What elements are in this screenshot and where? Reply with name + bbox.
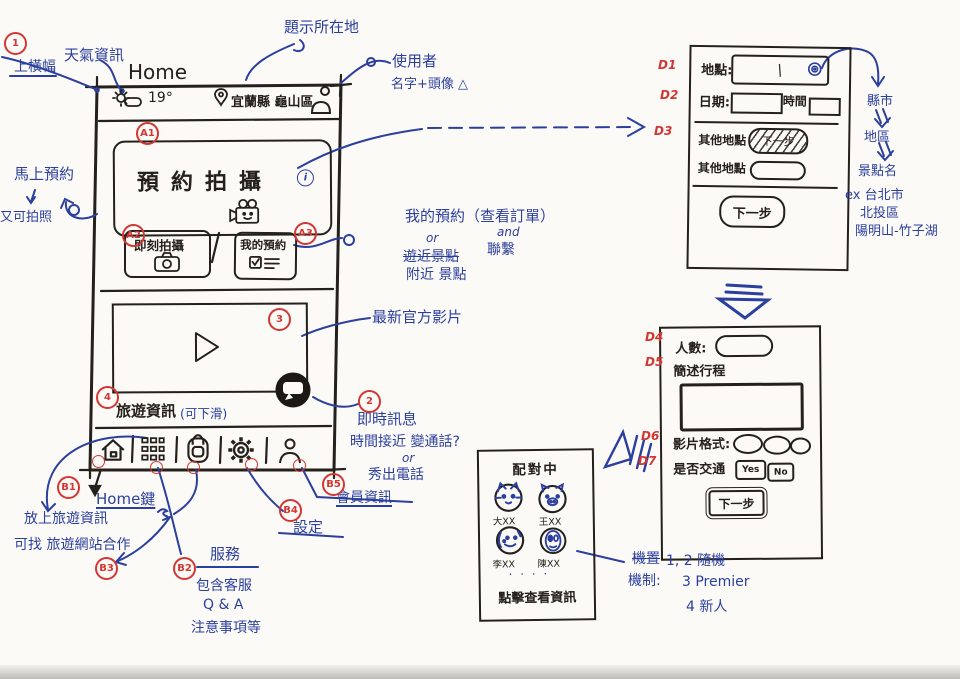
yes-label: Yes [742, 465, 759, 475]
note-mechanism-crossed: 機置 [632, 548, 660, 568]
next-step-label-1: 下一步 [733, 202, 772, 222]
marker-b5: B5 [322, 473, 345, 496]
note-nearby-spots: 附近 景點 [406, 264, 466, 284]
matching-title: 配對中 [479, 457, 592, 479]
marker-2: 2 [358, 390, 381, 413]
note-home-key: Home鍵 [96, 488, 155, 509]
note-example1: ex 台北市 [845, 184, 904, 203]
current-location-icon [807, 62, 822, 81]
sketch-page: 1 A1 A2 A3 3 4 2 B1 B3 B2 B4 B5 D1 D2 D3… [0, 0, 960, 679]
note-show-location: 題示所在地 [284, 16, 359, 37]
marker-4: 4 [96, 386, 119, 409]
info-icon: i [297, 169, 314, 186]
time-input [809, 98, 841, 116]
format-label: 影片格式: [673, 433, 730, 452]
note-put-travel-info: 放上旅遊資訊 [24, 508, 108, 528]
marker-b4: B4 [279, 499, 302, 522]
photo-camera-icon [153, 251, 181, 277]
other-location-input [750, 161, 806, 181]
nav-mark-backpack [187, 461, 200, 474]
note-time-near: 時間接近 變通話? [350, 431, 460, 451]
divider [693, 185, 838, 189]
note-service-line1: 包含客服 [196, 575, 252, 595]
marker-d1: D1 [658, 58, 676, 72]
play-icon [194, 331, 220, 367]
other-location-label-1: 其他地點 [698, 131, 746, 149]
note-near-spots-strike: 遊近景點 [403, 246, 459, 266]
more-members-dots: · · · · [508, 567, 549, 582]
note-weather: 天氣資訊 [64, 44, 124, 65]
note-service-line2: Q & A [203, 597, 243, 613]
next-step-button-2: 下一步 [708, 490, 764, 516]
people-label: 人數: [675, 337, 706, 356]
note-book-now: 馬上預約 [14, 163, 74, 184]
member-name: 大XX [493, 513, 516, 527]
note-find-partner: 可找 旅遊網站合作 [14, 534, 130, 554]
note-mechanism-label: 機制: [628, 570, 661, 590]
travel-info-title: 旅遊資訊 [116, 400, 176, 421]
phone-home-label: Home [128, 60, 187, 84]
marker-a2: A2 [122, 224, 145, 247]
date-label: 日期: [699, 91, 730, 110]
location-text: 宜蘭縣 龜山區 [231, 91, 314, 110]
next-step-button-1: 下一步 [719, 195, 785, 228]
avatar-cat-icon [491, 479, 526, 517]
my-bookings-label: 我的預約 [240, 237, 286, 253]
ink-dot [94, 87, 100, 93]
itinerary-label: 簡述行程 [673, 360, 725, 379]
location-input-value: / [775, 61, 786, 80]
matching-footer: 點擊查看資訊 [481, 586, 594, 607]
time-label: 時間 [783, 92, 807, 109]
nav-mark-gear [245, 458, 258, 471]
nav-mark-grid [150, 461, 163, 474]
transport-label: 是否交通 [673, 458, 725, 477]
note-also-shoot: 又可拍照 [0, 206, 52, 225]
marker-d2: D2 [660, 88, 678, 102]
note-and: and [497, 225, 520, 239]
note-or2: or [402, 451, 414, 465]
note-example2: 北投區 [860, 202, 899, 221]
nav-mark-home [92, 455, 105, 468]
marker-1: 1 [4, 32, 27, 55]
format-option-1 [733, 434, 763, 454]
note-district: 地區 [864, 126, 890, 145]
format-option-2 [763, 436, 791, 455]
crossed-next-label: 下一步 [762, 133, 795, 149]
location-label: 地點: [701, 59, 732, 78]
note-contact: 聯繫 [487, 239, 515, 259]
note-example3: 陽明山-竹子湖 [855, 220, 938, 239]
my-bookings-button: 我的預約 [234, 232, 297, 281]
note-mechanism-rule1: 1, 2 隨機 [666, 550, 725, 570]
member-name: 王XX [539, 514, 562, 528]
booking-step1-panel: 地點: / 日期: 時間 其他地點 下一步 其他地點 下一步 [686, 45, 851, 271]
note-top-banner: 上橫幅 [14, 56, 56, 76]
note-my-booking: 我的預約（查看訂單） [405, 205, 555, 226]
next-step-label-2: 下一步 [718, 494, 754, 511]
people-input [715, 335, 773, 358]
location-pin-icon [214, 88, 228, 111]
note-mechanism-rule3: 4 新人 [686, 596, 727, 616]
chat-bubble-icon [274, 371, 312, 413]
crossed-next-pill: 下一步 [748, 128, 808, 155]
note-user-detail: 名字+頭像 △ [391, 73, 468, 92]
marker-a3: A3 [294, 222, 317, 245]
temperature-text: 19° [148, 90, 173, 106]
location-input: / [731, 54, 829, 85]
checklist-icon [249, 254, 281, 276]
note-latest-video: 最新官方影片 [372, 306, 462, 327]
marker-d5: D5 [645, 355, 663, 369]
divider [694, 121, 838, 125]
marker-d3: D3 [654, 124, 672, 138]
note-show-phone: 秀出電話 [368, 464, 424, 484]
marker-d6: D6 [641, 429, 659, 443]
other-location-label-2: 其他地點 [698, 159, 746, 177]
user-avatar-icon [308, 85, 334, 119]
transport-yes-option: Yes [735, 460, 766, 480]
travel-info-hint: (可下滑) [180, 403, 227, 422]
movie-camera-icon [227, 198, 267, 232]
date-input [731, 92, 783, 114]
itinerary-textarea [679, 382, 803, 431]
marker-a1: A1 [136, 122, 159, 145]
note-mechanism-rule2: 3 Premier [682, 574, 750, 590]
marker-b2: B2 [173, 557, 196, 580]
note-service: 服務 [210, 543, 240, 564]
marker-d7: D7 [638, 454, 656, 468]
marker-b1: B1 [57, 476, 80, 499]
booking-step2-panel: 人數: 簡述行程 影片格式: 是否交通 Yes No 下一步 [659, 325, 823, 560]
nav-mark-profile [293, 459, 306, 472]
hero-title: 預約拍攝 [137, 164, 273, 197]
note-member-info: 會員資訊 [336, 487, 392, 507]
note-county: 縣市 [867, 90, 893, 109]
marker-d4: D4 [645, 330, 663, 344]
transport-no-option: No [767, 463, 794, 482]
note-or: or [426, 231, 438, 245]
down-arrow-doodle [719, 285, 768, 318]
hero-booking-card: 預約拍攝 i [113, 139, 333, 237]
format-option-3 [790, 437, 811, 454]
note-user: 使用者 [392, 50, 437, 71]
no-label: No [774, 467, 788, 477]
note-service-line3: 注意事項等 [191, 617, 261, 637]
marker-3: 3 [268, 308, 291, 331]
note-spot-name: 景點名 [858, 160, 897, 179]
marker-b3: B3 [95, 557, 118, 580]
matching-card: 配對中 大XX [477, 448, 596, 622]
weather-icon [112, 88, 146, 118]
